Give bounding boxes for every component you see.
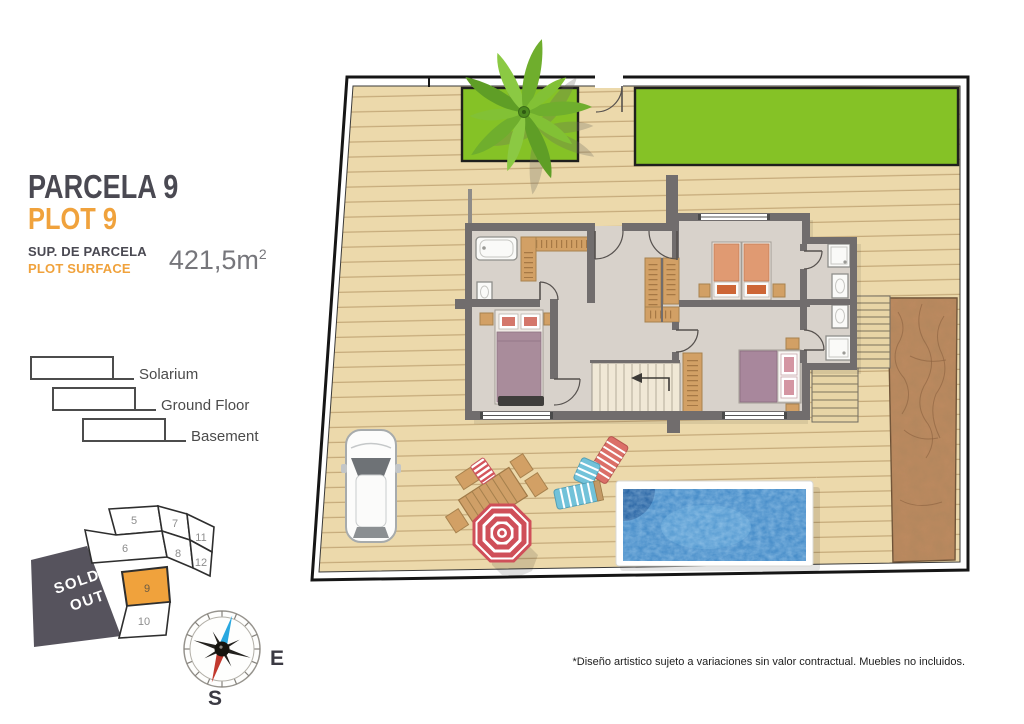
brochure-page: { "header": { "title_es": "PARCELA 9", "… bbox=[0, 0, 1024, 724]
bedside-stool bbox=[786, 338, 799, 349]
window bbox=[698, 214, 770, 220]
plot-header: PARCELA 9 PLOT 9 SUP. DE PARCELA PLOT SU… bbox=[28, 170, 267, 278]
twin-bed bbox=[712, 242, 741, 300]
plot-number: 5 bbox=[131, 515, 137, 527]
bed bbox=[739, 350, 801, 403]
sink bbox=[477, 282, 492, 301]
plot-number: 7 bbox=[172, 518, 178, 530]
legend-swatch bbox=[30, 356, 114, 380]
surface-label-es: SUP. DE PARCELA bbox=[28, 244, 147, 261]
car bbox=[341, 430, 401, 542]
legend-label: Solarium bbox=[139, 366, 198, 383]
bathtub bbox=[476, 237, 517, 260]
legend-label: Ground Floor bbox=[161, 397, 249, 414]
legend-item-basement: Basement bbox=[82, 411, 259, 442]
disclaimer-text: *Diseño artistico sujeto a variaciones s… bbox=[540, 656, 965, 668]
sink bbox=[832, 305, 848, 328]
legend-line bbox=[114, 356, 134, 380]
compass-rose: E S bbox=[178, 607, 298, 712]
dirt-area bbox=[888, 298, 957, 562]
bedside-stool bbox=[699, 284, 710, 297]
plot-number-highlighted: 9 bbox=[144, 583, 150, 595]
compass-south-label: S bbox=[208, 687, 222, 710]
plot-number: 8 bbox=[175, 548, 181, 560]
legend-item-solarium: Solarium bbox=[30, 349, 259, 380]
bedside-stool bbox=[773, 284, 785, 297]
compass-east-label: E bbox=[270, 647, 284, 670]
shower bbox=[828, 244, 850, 267]
wardrobe bbox=[683, 353, 702, 413]
plot-number: 12 bbox=[195, 557, 207, 569]
legend-label: Basement bbox=[191, 428, 259, 445]
legend-swatch bbox=[82, 418, 166, 442]
floor-legend: Solarium Ground Floor Basement bbox=[30, 349, 259, 442]
window bbox=[722, 412, 787, 419]
bedside-stool bbox=[480, 313, 493, 325]
wardrobe bbox=[645, 258, 679, 322]
bed bbox=[495, 310, 543, 404]
sink bbox=[832, 274, 848, 298]
sideboard bbox=[498, 396, 544, 406]
plot-number: 6 bbox=[122, 543, 128, 555]
window bbox=[480, 412, 553, 419]
legend-item-ground-floor: Ground Floor bbox=[52, 380, 259, 411]
legend-line bbox=[166, 418, 186, 442]
twin-bed bbox=[742, 242, 771, 300]
legend-swatch bbox=[52, 387, 136, 411]
surface-value: 421,5m2 bbox=[169, 245, 267, 276]
page-title-en: PLOT 9 bbox=[28, 203, 224, 234]
shower bbox=[826, 336, 851, 360]
plot-number: 11 bbox=[195, 532, 206, 544]
surface-label-en: PLOT SURFACE bbox=[28, 261, 147, 278]
legend-line bbox=[136, 387, 156, 411]
page-title: PARCELA 9 bbox=[28, 170, 224, 203]
staircase bbox=[592, 363, 680, 413]
plot-number: 10 bbox=[138, 616, 150, 628]
grass-area-right bbox=[635, 88, 958, 165]
